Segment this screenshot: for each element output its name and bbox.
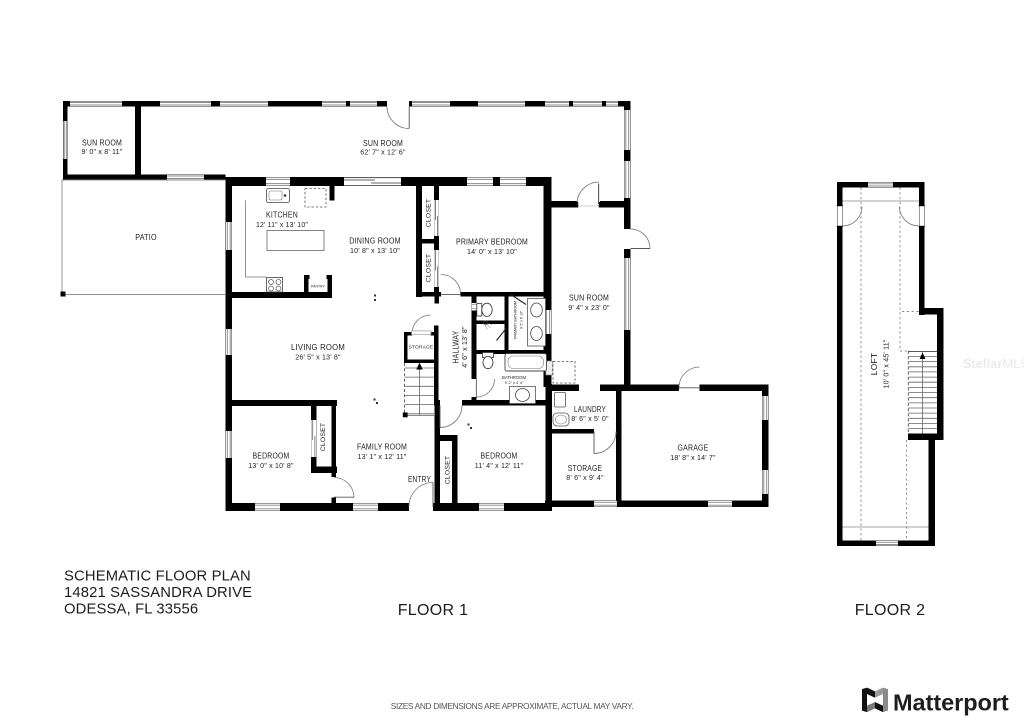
svg-text:12' 11" x 13' 10": 12' 11" x 13' 10" bbox=[256, 220, 308, 229]
svg-text:CLOSET: CLOSET bbox=[426, 199, 433, 227]
svg-text:13' 1" x 12' 11": 13' 1" x 12' 11" bbox=[358, 452, 407, 461]
svg-text:KITCHEN: KITCHEN bbox=[266, 210, 298, 220]
svg-text:SUN ROOM: SUN ROOM bbox=[569, 293, 609, 303]
svg-text:PATIO: PATIO bbox=[135, 232, 157, 242]
svg-text:9' 2" x 4' 4": 9' 2" x 4' 4" bbox=[505, 381, 524, 385]
svg-text:10' 8" x 13' 10": 10' 8" x 13' 10" bbox=[350, 246, 400, 255]
svg-text:FAMILY ROOM: FAMILY ROOM bbox=[357, 442, 407, 452]
svg-text:DINING ROOM: DINING ROOM bbox=[349, 236, 401, 246]
svg-text:CLOSET: CLOSET bbox=[426, 254, 433, 282]
svg-text:StellarMLS: StellarMLS bbox=[963, 357, 1024, 371]
svg-text:GARAGE: GARAGE bbox=[678, 443, 709, 453]
svg-text:9' 0" x 8' 11": 9' 0" x 8' 11" bbox=[82, 147, 123, 156]
svg-text:62' 7" x 12' 6": 62' 7" x 12' 6" bbox=[360, 148, 406, 157]
svg-text:ENTRY: ENTRY bbox=[408, 474, 431, 484]
svg-text:LIVING ROOM: LIVING ROOM bbox=[291, 342, 345, 352]
svg-text:PANTRY: PANTRY bbox=[311, 285, 326, 289]
svg-text:BEDROOM: BEDROOM bbox=[481, 451, 518, 461]
svg-text:LAUNDRY: LAUNDRY bbox=[574, 404, 606, 414]
svg-text:14' 0" x 13' 10": 14' 0" x 13' 10" bbox=[467, 247, 517, 256]
svg-text:SUN ROOM: SUN ROOM bbox=[82, 138, 122, 148]
svg-text:SIZES AND DIMENSIONS ARE APPRO: SIZES AND DIMENSIONS ARE APPROXIMATE, AC… bbox=[391, 701, 633, 711]
svg-text:8' 6" x 5' 0": 8' 6" x 5' 0" bbox=[571, 414, 609, 423]
svg-text:SCHEMATIC FLOOR PLAN: SCHEMATIC FLOOR PLAN bbox=[64, 569, 251, 585]
svg-text:8' 6" x 9' 4": 8' 6" x 9' 4" bbox=[566, 473, 604, 482]
svg-text:ODESSA, FL 33556: ODESSA, FL 33556 bbox=[64, 602, 198, 618]
svg-text:STORAGE: STORAGE bbox=[409, 345, 434, 351]
svg-text:10' 0" x 45' 11": 10' 0" x 45' 11" bbox=[882, 339, 891, 388]
svg-text:FLOOR 2: FLOOR 2 bbox=[855, 602, 926, 619]
svg-text:26' 5" x 13' 8": 26' 5" x 13' 8" bbox=[295, 353, 341, 362]
svg-text:PRIMARY BEDROOM: PRIMARY BEDROOM bbox=[456, 237, 528, 247]
svg-text:STORAGE: STORAGE bbox=[568, 463, 603, 473]
svg-text:BATHROOM: BATHROOM bbox=[502, 375, 526, 380]
svg-text:9' 2" x 6' 10": 9' 2" x 6' 10" bbox=[520, 310, 524, 329]
svg-text:CLOSET: CLOSET bbox=[445, 456, 452, 484]
svg-text:FLOOR 1: FLOOR 1 bbox=[398, 602, 469, 619]
svg-text:CLOSET: CLOSET bbox=[320, 423, 327, 451]
svg-text:BEDROOM: BEDROOM bbox=[253, 451, 290, 461]
svg-text:9' 4" x 23' 0": 9' 4" x 23' 0" bbox=[568, 303, 610, 312]
svg-text:13' 0" x 10' 8": 13' 0" x 10' 8" bbox=[248, 461, 294, 470]
svg-text:18' 8" x 14' 7": 18' 8" x 14' 7" bbox=[670, 453, 716, 462]
svg-text:14821 SASSANDRA DRIVE: 14821 SASSANDRA DRIVE bbox=[64, 585, 252, 601]
svg-text:4' 6" x 13' 8": 4' 6" x 13' 8" bbox=[460, 326, 469, 368]
svg-text:SUN ROOM: SUN ROOM bbox=[363, 138, 403, 148]
svg-text:LOFT: LOFT bbox=[869, 353, 879, 375]
svg-text:11' 4" x 12' 11": 11' 4" x 12' 11" bbox=[475, 461, 524, 470]
svg-text:HALLWAY: HALLWAY bbox=[451, 330, 461, 363]
svg-text:Matterport: Matterport bbox=[893, 690, 1009, 716]
svg-text:PRIMARY BATHROOM: PRIMARY BATHROOM bbox=[514, 301, 518, 339]
